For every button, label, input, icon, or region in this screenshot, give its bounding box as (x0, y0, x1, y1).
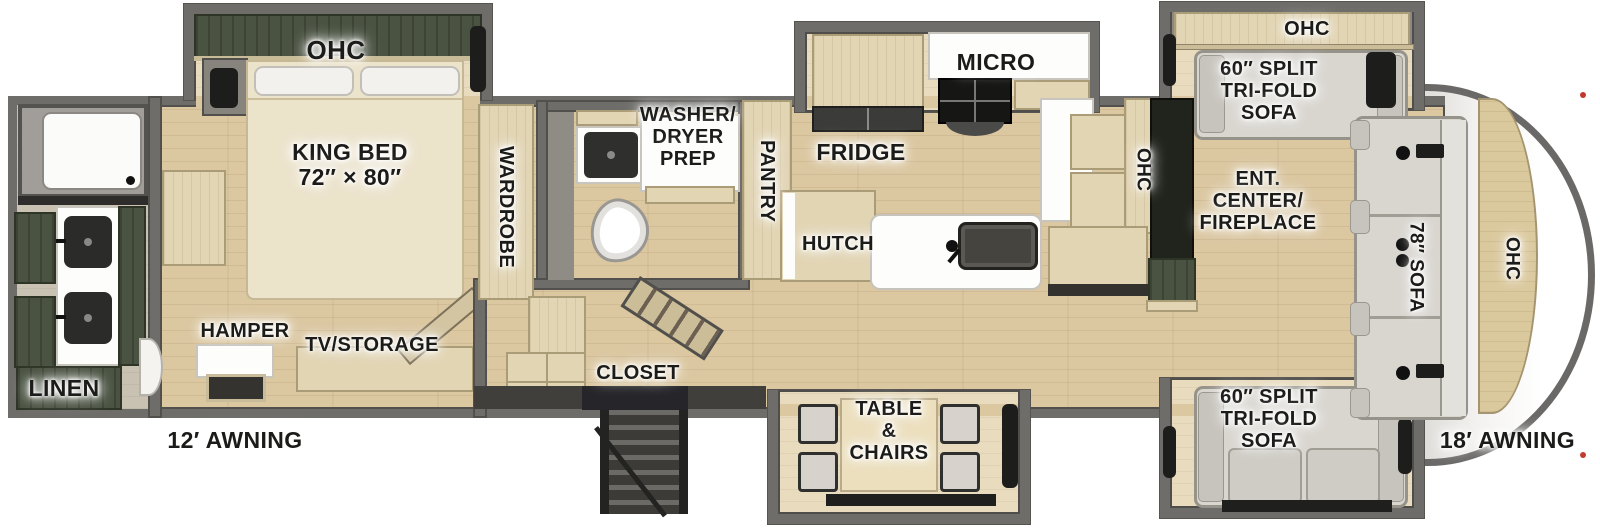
slide-window (1163, 34, 1176, 86)
label-hamper: HAMPER (190, 320, 300, 342)
pillow (254, 66, 354, 96)
slide-window (1366, 52, 1396, 108)
mid-bath-wall-left (536, 100, 548, 290)
island-sink (958, 222, 1038, 270)
entry-door-mat (582, 386, 688, 410)
washer-cabinet (645, 186, 735, 204)
slide-window (1163, 426, 1176, 478)
sofa-armrest (1350, 200, 1370, 234)
sofa-armrest (1350, 120, 1370, 150)
label-ohc-living: OHC (1272, 18, 1342, 40)
label-king-bed: KING BED 72″ × 80″ (270, 140, 430, 191)
medicine-cabinet (14, 296, 56, 368)
dinette-chair (798, 404, 838, 444)
slide-floor-mat (1222, 500, 1392, 512)
sofa-cushion (1306, 448, 1380, 504)
label-micro: MICRO (946, 50, 1046, 75)
ent-center-shelf (1146, 300, 1198, 312)
label-ohc-bedroom: OHC (296, 36, 376, 65)
closet-cabinet (528, 296, 586, 358)
label-fridge: FRIDGE (806, 140, 916, 165)
dinette-chair (798, 452, 838, 492)
sofa-console (1416, 144, 1444, 158)
dinette-floor-mat (826, 494, 996, 506)
slide-window (1002, 404, 1018, 488)
slide-window (1398, 418, 1412, 474)
sofa-console (1416, 364, 1444, 378)
counter-return (1048, 226, 1148, 288)
dinette-chair (940, 404, 980, 444)
range-stove (938, 78, 1012, 124)
refrigerator-doors (812, 106, 924, 132)
ent-center-lower-cabinet (1148, 258, 1196, 304)
hamper-bin (206, 374, 266, 402)
counter-return-edge (1048, 284, 1148, 296)
label-linen: LINEN (6, 376, 122, 401)
label-tv-storage: TV/STORAGE (292, 334, 452, 356)
label-wardrobe: WARDROBE (489, 112, 523, 302)
sink-drain (84, 314, 92, 322)
hamper-counter (196, 344, 274, 378)
sofa-armrest (1350, 302, 1370, 336)
label-ent-center: ENT. CENTER/ FIREPLACE (1184, 168, 1332, 234)
nightstand-top (210, 68, 238, 108)
cupholder (1396, 366, 1410, 380)
label-sofa-front: 78″ SOFA (1398, 200, 1432, 335)
bed-crease (248, 98, 462, 100)
kitchen-cabinet (1070, 114, 1126, 170)
label-ohc-kitchen: OHC (1125, 138, 1159, 202)
entry-steps (600, 410, 688, 514)
label-ohc-front: OHC (1494, 226, 1528, 292)
label-sofa-slide-top: 60″ SPLIT TRI-FOLD SOFA (1198, 58, 1340, 124)
label-awning-left: 12′ AWNING (150, 428, 320, 453)
label-closet: CLOSET (584, 362, 692, 384)
bath-sink-drain (607, 151, 615, 159)
pillow (360, 66, 460, 96)
label-table-chairs: TABLE & CHAIRS (836, 398, 942, 464)
cap-marker-light-top (1580, 92, 1586, 98)
label-pantry: PANTRY (750, 106, 784, 256)
slide-window (470, 26, 486, 92)
dinette-chair (940, 452, 980, 492)
bath-alcove (548, 112, 574, 280)
sofa-armrest (1350, 388, 1370, 418)
kitchen-cabinet (1070, 172, 1126, 228)
label-awning-right: 18′ AWNING (1420, 428, 1595, 453)
shower-drain (126, 176, 135, 185)
sink-drain (84, 238, 92, 246)
dresser (162, 170, 226, 266)
medicine-cabinet (14, 212, 56, 284)
cupholder (1396, 146, 1410, 160)
label-washer-dryer-prep: WASHER/ DRYER PREP (618, 104, 758, 170)
shower-threshold (18, 196, 148, 205)
floorplan-canvas: OHC KING BED 72″ × 80″ WARDROBE WASHER/ … (0, 0, 1600, 528)
refrigerator (812, 34, 924, 108)
label-hutch: HUTCH (793, 233, 883, 255)
label-sofa-slide-bottom: 60″ SPLIT TRI-FOLD SOFA (1198, 386, 1340, 452)
sofa-cushion (1228, 448, 1302, 504)
